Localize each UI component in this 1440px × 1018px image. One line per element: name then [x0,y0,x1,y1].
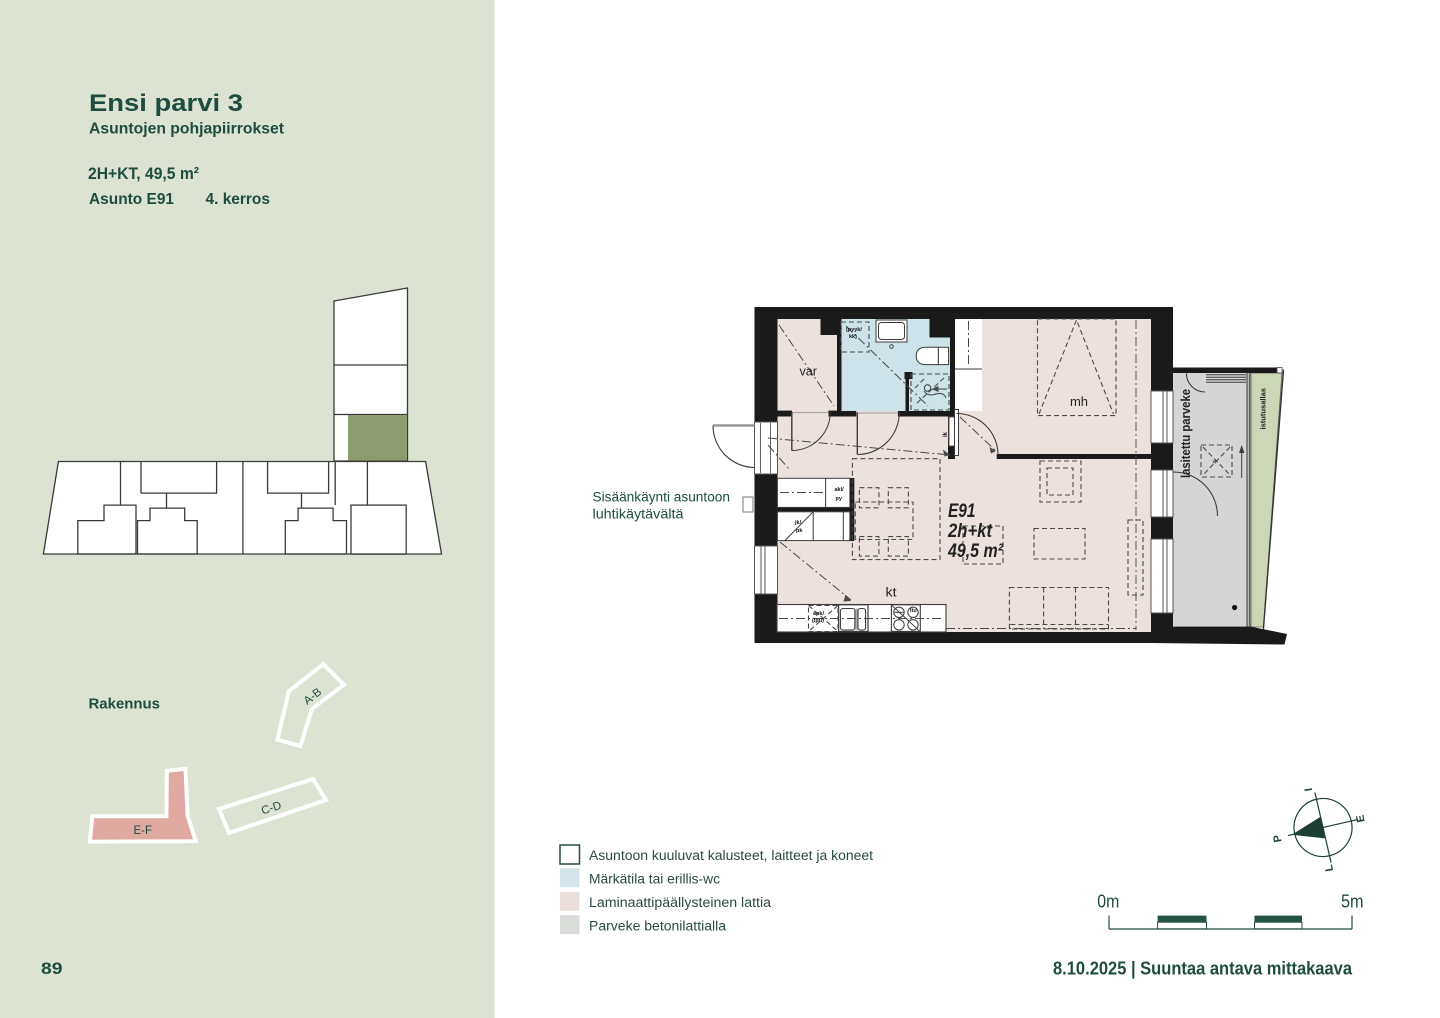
svg-text:(pyyk/: (pyyk/ [846,327,862,333]
svg-text:E: E [1354,814,1367,823]
svg-text:Asuntoon kuuluvat kalusteet, l: Asuntoon kuuluvat kalusteet, laitteet ja… [589,848,873,863]
svg-text:×: × [1212,458,1217,467]
svg-text:jk/: jk/ [794,520,802,526]
svg-text:0m: 0m [1097,892,1119,912]
svg-text:Sisäänkäynti asuntoon: Sisäänkäynti asuntoon [593,490,731,505]
svg-text:E91: E91 [948,500,976,522]
svg-text:lasitettu parveke: lasitettu parveke [1179,389,1193,478]
svg-text:apk/: apk/ [813,611,824,617]
svg-text:4. kerros: 4. kerros [206,191,271,208]
svg-text:Märkätila tai erillis-wc: Märkätila tai erillis-wc [589,872,720,887]
svg-text:2H+KT, 49,5 m²: 2H+KT, 49,5 m² [88,165,199,183]
svg-text:luhtikäytävältä: luhtikäytävältä [593,507,685,522]
svg-text:Rakennus: Rakennus [89,696,161,713]
svg-text:Parveke betonilattialla: Parveke betonilattialla [589,919,726,934]
svg-text:ltu: ltu [910,608,917,614]
svg-text:akl/: akl/ [835,487,845,493]
svg-text:L: L [1323,863,1336,872]
svg-text:P: P [1271,834,1284,843]
svg-text:8.10.2025 | Suuntaa antava mit: 8.10.2025 | Suuntaa antava mittakaava [1053,959,1353,979]
svg-text:89: 89 [41,959,63,978]
svg-text:Laminaattipäällysteinen lattia: Laminaattipäällysteinen lattia [589,895,772,910]
svg-text:istutusallas: istutusallas [1259,388,1268,430]
svg-text:2h+kt: 2h+kt [947,520,993,542]
svg-text:Asuntojen pohjapiirrokset: Asuntojen pohjapiirrokset [89,121,285,138]
svg-text:E-F: E-F [134,825,153,837]
svg-text:49,5 m²: 49,5 m² [947,540,1003,562]
svg-text:pk: pk [796,528,803,534]
svg-text:kk): kk) [849,334,857,340]
svg-text:kt: kt [886,586,898,600]
svg-text:I: I [1303,787,1315,792]
svg-text:5m: 5m [1341,892,1364,912]
svg-text:Ensi parvi 3: Ensi parvi 3 [89,90,243,117]
svg-text:mh: mh [1070,394,1088,409]
svg-text:(lpu): (lpu) [812,618,824,624]
svg-text:Asunto E91: Asunto E91 [89,191,174,208]
svg-text:var: var [800,365,818,379]
svg-text:py: py [836,496,843,502]
svg-text:ik: ik [943,431,949,437]
